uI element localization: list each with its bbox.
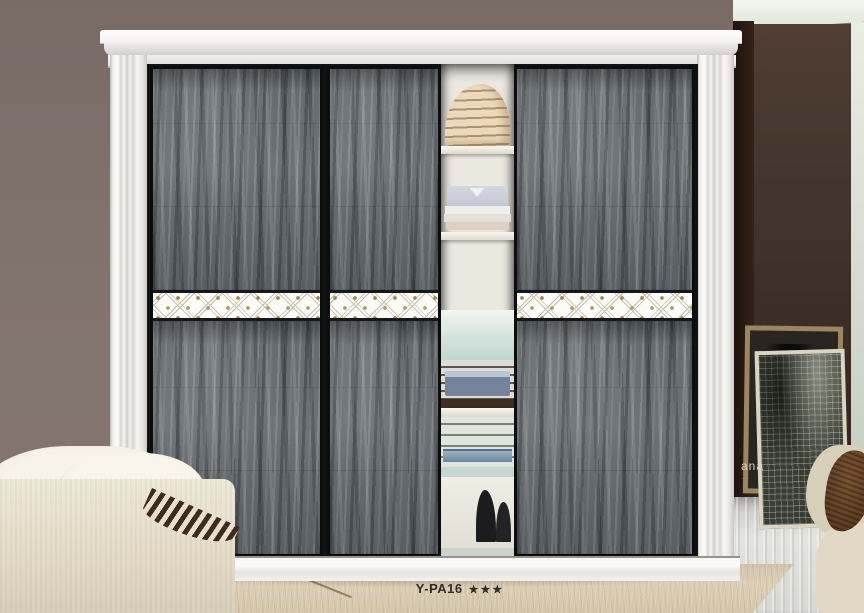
sliding-door-middle[interactable] [327,66,441,557]
door-right-upper-panel [517,69,692,290]
folded-blanket [445,84,510,146]
poster-fine-print: ·· ·· [741,473,777,486]
boot [496,502,511,542]
right-wall-light-edge [851,22,864,512]
wire-basket-drawer[interactable] [441,360,514,408]
folded-shirts-stack [441,186,514,232]
product-caption: Y-PA16★★★ [385,581,535,596]
shoe-cubby [441,477,514,548]
shelf [441,408,514,417]
door-left-upper-panel [153,69,320,290]
pull-out-trouser-rack[interactable] [441,417,514,467]
door-right-lower-panel [517,321,692,554]
folded-shirt [447,186,508,206]
shelf [441,232,514,240]
basket-base [441,399,514,408]
door-middle-upper-panel [330,69,438,290]
poster-text: ana ·· ·· [741,460,777,496]
armchair-seat [816,523,864,613]
door-left-lattice-band [153,290,320,321]
poster-text-label: ana [741,459,764,473]
frosted-glass-panel [441,310,514,361]
crown-molding-top [100,30,742,43]
rack-front-rail [443,449,512,462]
sliding-door-right[interactable] [514,66,695,557]
model-number: Y-PA16 [416,581,463,596]
white-sofa-arm [0,479,235,613]
open-interior-shelves [441,64,514,558]
folded-shirt [445,206,510,214]
wardrobe-product-photo: ana ·· ·· [0,0,864,613]
boot [476,490,496,542]
door-middle-lattice-band [330,290,438,321]
door-right-lattice-band [517,290,692,321]
folded-shirt [444,214,511,222]
star-rating: ★★★ [469,584,505,596]
folded-shirt [446,222,509,230]
shelf [441,146,514,154]
folded-blue-clothes [445,371,510,396]
wardrobe-right-pillar [697,55,734,558]
door-middle-lower-panel [330,321,438,554]
